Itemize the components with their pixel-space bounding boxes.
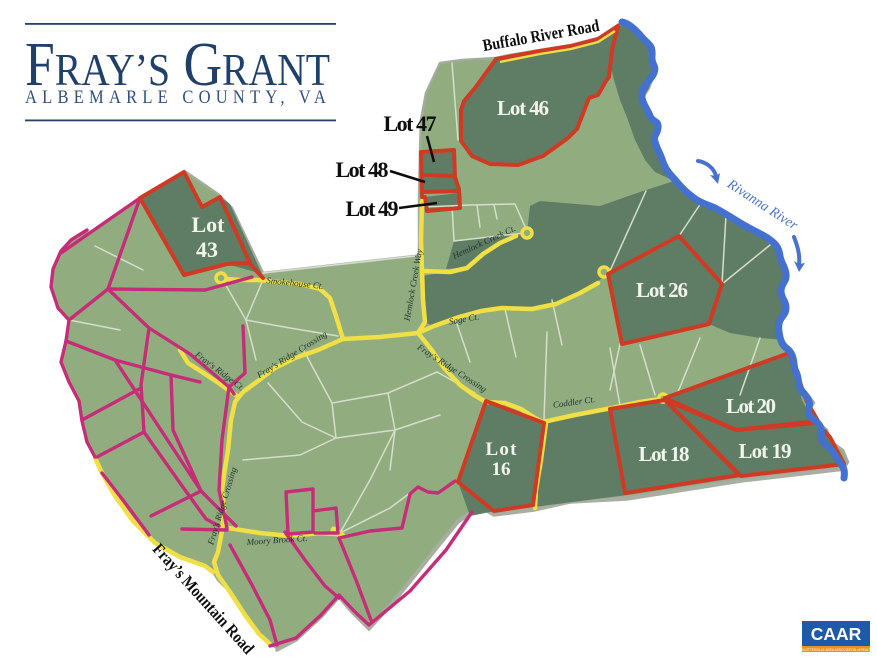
svg-text:CAAR: CAAR	[811, 624, 862, 644]
svg-text:Lot 20: Lot 20	[726, 394, 776, 418]
svg-text:Lot 19: Lot 19	[739, 439, 792, 463]
svg-text:CHARLOTTESVILLE AREA ASSOCIATI: CHARLOTTESVILLE AREA ASSOCIATION of REAL…	[795, 648, 877, 652]
svg-text:43: 43	[196, 237, 218, 262]
svg-text:Lot 26: Lot 26	[636, 278, 688, 302]
svg-text:Lot 49: Lot 49	[346, 196, 399, 221]
svg-text:Lot 48: Lot 48	[336, 157, 389, 182]
svg-text:Lot 18: Lot 18	[639, 442, 690, 466]
svg-text:16: 16	[492, 459, 511, 480]
svg-text:Lot: Lot	[192, 212, 226, 237]
svg-text:Lot 47: Lot 47	[384, 111, 437, 136]
svg-text:ALBEMARLE COUNTY, VA: ALBEMARLE COUNTY, VA	[25, 87, 331, 108]
svg-text:Lot: Lot	[486, 439, 518, 460]
svg-text:Lot 46: Lot 46	[497, 96, 549, 120]
